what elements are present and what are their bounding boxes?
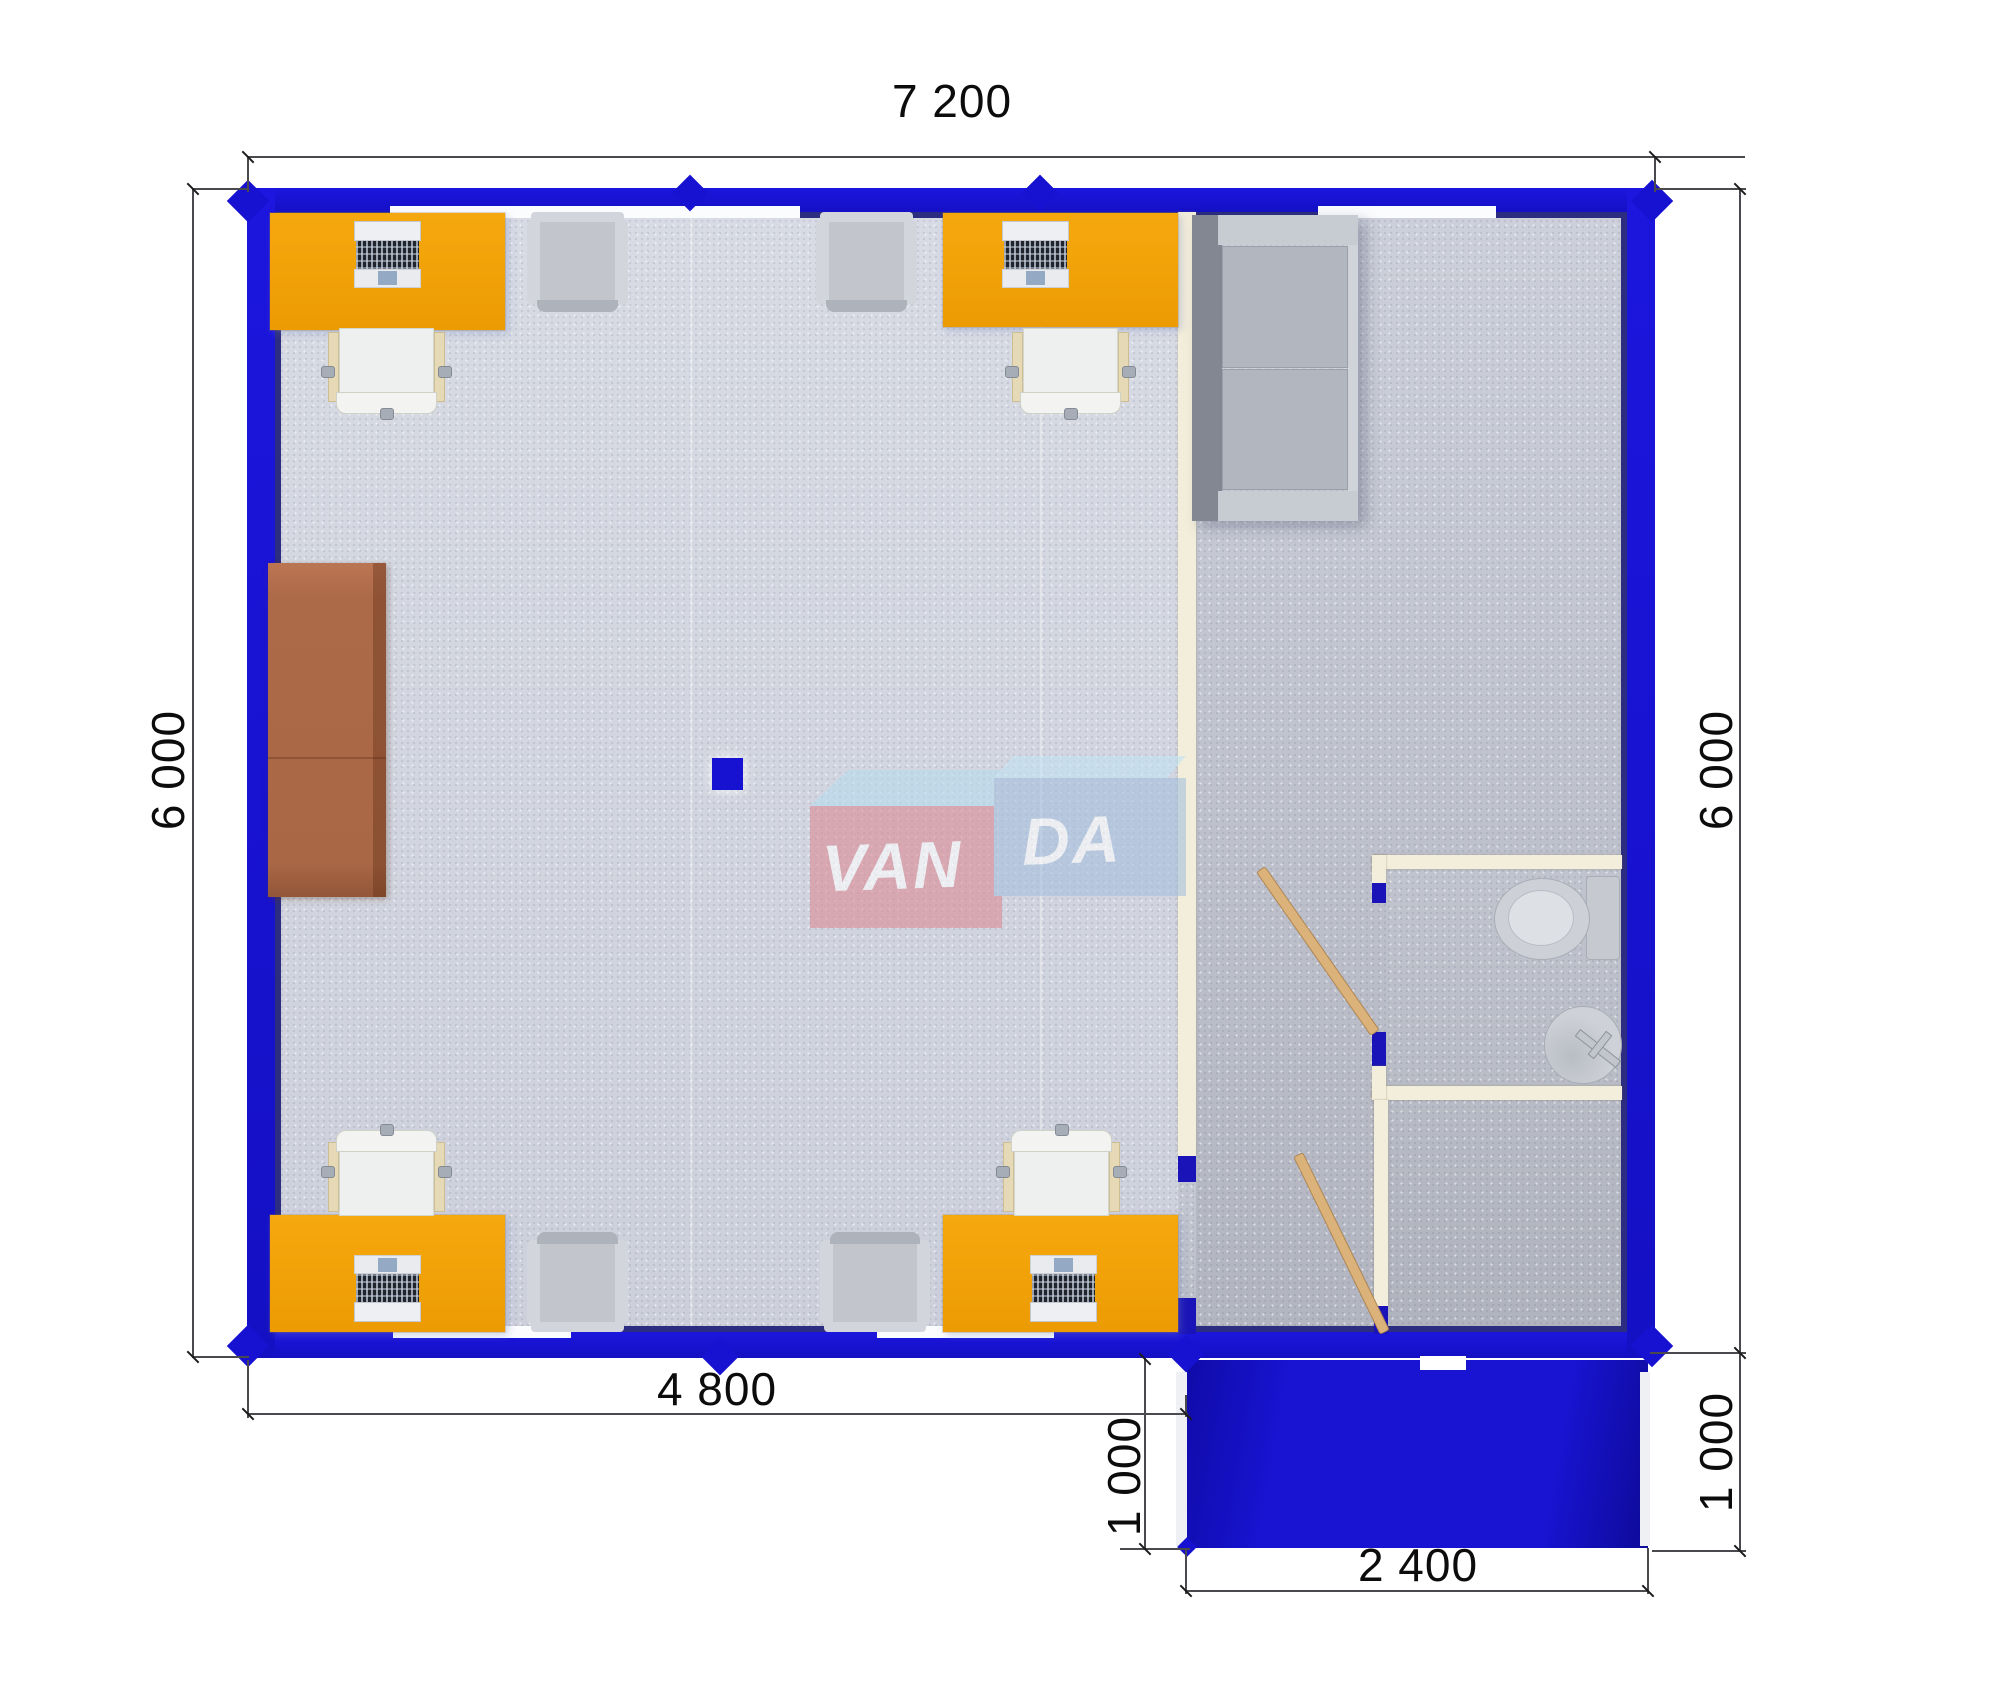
wall-right: [1627, 188, 1655, 1358]
sofa-backrest: [1192, 215, 1222, 521]
storage-wall-left: [1374, 1100, 1388, 1306]
toilet-tank: [1586, 876, 1620, 960]
sofa: [1192, 215, 1358, 521]
laptop-icon: [354, 221, 421, 288]
porch-post-right: [1640, 1372, 1650, 1546]
logo-text-van: VAN: [821, 826, 964, 907]
cabinet: [268, 563, 386, 897]
armchair-armrest: [527, 1240, 541, 1324]
armchair: [816, 212, 917, 313]
armchair-armrest: [916, 1240, 930, 1324]
structural-column: [712, 758, 743, 790]
armchair-front: [537, 1232, 618, 1244]
logo-blue-box-top: [994, 756, 1186, 778]
chair-wheel: [380, 1124, 394, 1136]
partition-door-jamb-bottom: [1178, 1298, 1196, 1334]
sink-basin: [1544, 1006, 1622, 1084]
bathroom-wall-left-lower: [1372, 1066, 1386, 1100]
extension-line: [192, 188, 249, 190]
armchair-armrest: [614, 220, 628, 304]
chair-wheel: [438, 366, 452, 378]
armchair: [820, 1231, 930, 1332]
laptop-touchpad: [1054, 1258, 1073, 1272]
armchair-armrest: [820, 1240, 834, 1324]
extension-line: [247, 1360, 249, 1418]
armchair-seat: [829, 222, 904, 302]
sink-symbol: [1544, 1004, 1624, 1088]
cabinet-edge: [373, 563, 386, 897]
toilet-symbol: [1494, 874, 1622, 964]
desk-chair: [328, 328, 445, 414]
sofa-armrest: [1218, 491, 1358, 521]
entrance-porch: [1186, 1360, 1648, 1548]
dimension-label-office-width: 4 800: [567, 1364, 867, 1414]
dimension-label-porch-depth-right: 1 000: [1690, 1342, 1742, 1562]
bathroom-door-jamb-bottom: [1372, 1032, 1386, 1066]
laptop-icon: [1030, 1255, 1097, 1322]
sofa-cushion: [1222, 246, 1348, 368]
armchair-armrest: [614, 1240, 628, 1324]
chair-wheel: [380, 408, 394, 420]
laptop-touchpad: [1026, 271, 1045, 285]
chair-wheel: [1055, 1124, 1069, 1136]
chair-wheel: [1122, 366, 1136, 378]
dimension-label-right-height: 6 000: [1690, 660, 1742, 880]
armchair-front: [826, 300, 907, 312]
dimension-label-left-height: 6 000: [142, 660, 194, 880]
armchair: [527, 1231, 628, 1332]
armchair-armrest: [816, 220, 830, 304]
extension-line: [1656, 188, 1746, 190]
chair-wheel: [438, 1166, 452, 1178]
armchair-seat: [540, 1242, 615, 1322]
bathroom-door-jamb-top: [1372, 883, 1386, 903]
dimension-label-top-width: 7 200: [802, 74, 1102, 128]
laptop-icon: [1002, 221, 1069, 288]
extension-line: [1647, 1548, 1649, 1594]
bathroom-wall-left-upper: [1372, 855, 1386, 883]
floor-module-seam: [690, 217, 692, 1327]
extension-line: [247, 156, 249, 192]
bathroom-wall-bottom: [1372, 1086, 1622, 1100]
desk-chair: [1003, 1130, 1120, 1216]
armchair: [527, 212, 628, 313]
sofa-front-edge: [1348, 245, 1358, 491]
desk-chair: [1012, 328, 1129, 414]
armchair-seat: [833, 1242, 917, 1322]
logo-text-da: DA: [1021, 800, 1123, 879]
laptop-keyboard: [1032, 1274, 1095, 1302]
dimension-label-porch-width: 2 400: [1268, 1540, 1568, 1590]
chair-wheel: [321, 366, 335, 378]
door-threshold: [1420, 1356, 1466, 1370]
cabinet-shelf-line: [268, 757, 386, 759]
laptop-screen: [354, 221, 421, 241]
desk-chair: [328, 1130, 445, 1216]
armchair-front: [830, 1232, 920, 1244]
chair-wheel: [996, 1166, 1010, 1178]
bathroom-wall-top: [1372, 855, 1622, 869]
laptop-touchpad: [378, 1258, 397, 1272]
extension-line: [1185, 1548, 1187, 1594]
sofa-armrest: [1218, 215, 1358, 245]
dimension-line-top: [248, 156, 1745, 158]
laptop-screen: [354, 1302, 421, 1322]
laptop-keyboard: [356, 241, 419, 269]
armchair-armrest: [903, 220, 917, 304]
storage-room-floor: [1388, 1098, 1622, 1334]
chair-wheel: [1113, 1166, 1127, 1178]
laptop-keyboard: [356, 1274, 419, 1302]
laptop-screen: [1030, 1302, 1097, 1322]
laptop-screen: [1002, 221, 1069, 241]
chair-wheel: [321, 1166, 335, 1178]
partition-door-jamb-top: [1178, 1156, 1196, 1182]
laptop-touchpad: [378, 271, 397, 285]
armchair-front: [537, 300, 618, 312]
partition-doorway-floor: [1178, 1182, 1196, 1298]
vanda-logo-watermark: VAN DA: [808, 756, 1188, 928]
sofa-cushion: [1222, 369, 1348, 490]
chair-wheel: [1005, 366, 1019, 378]
wall-right-inner-shadow: [1621, 214, 1627, 1328]
extension-line: [192, 1356, 249, 1358]
armchair-armrest: [527, 220, 541, 304]
armchair-seat: [540, 222, 615, 302]
floor-plan-canvas: VAN DA 7 200 6 000 6 000 4 800 1 000 1 0…: [0, 0, 2000, 1682]
laptop-icon: [354, 1255, 421, 1322]
dimension-label-porch-depth-left: 1 000: [1098, 1366, 1150, 1586]
toilet-seat: [1508, 890, 1574, 946]
extension-line: [1654, 156, 1656, 192]
chair-wheel: [1064, 408, 1078, 420]
laptop-keyboard: [1004, 241, 1067, 269]
